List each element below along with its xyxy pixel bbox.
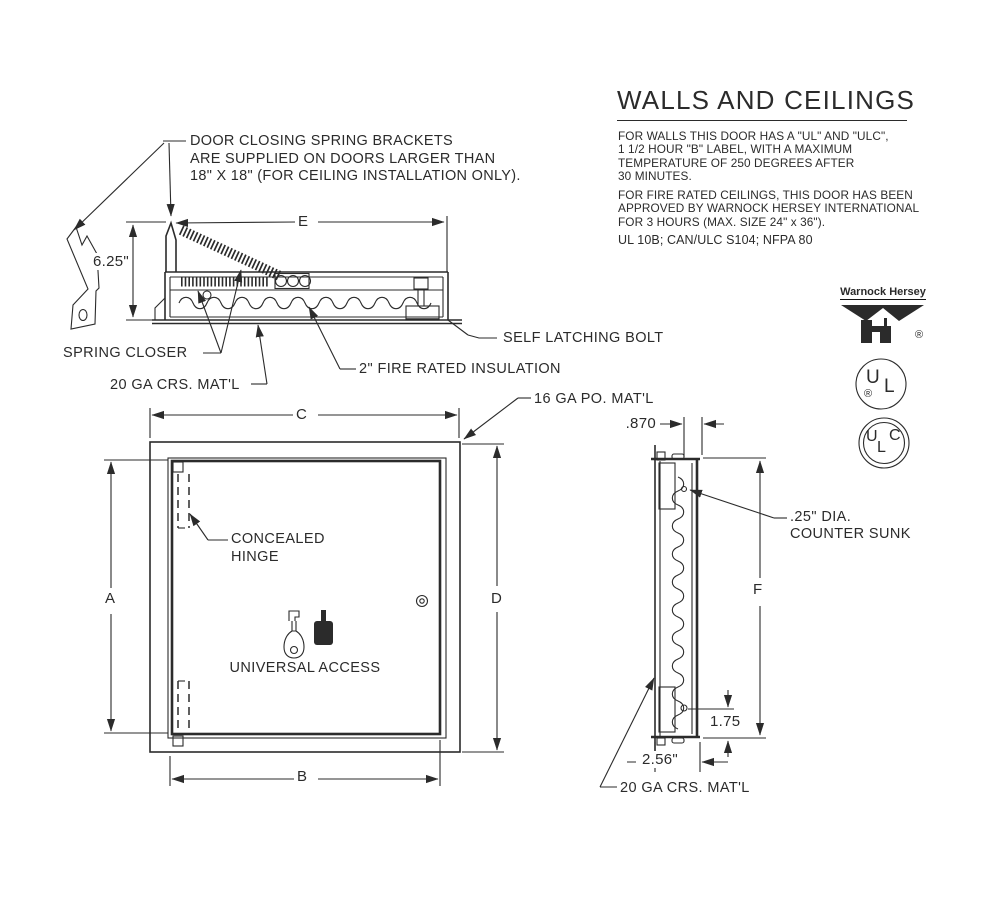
note-leaders (74, 141, 186, 230)
self-latching-bolt-graphic (406, 278, 468, 335)
section-label-leaders (198, 270, 531, 439)
ul-registered-mark: ® (864, 388, 872, 400)
label-self-latching-bolt: SELF LATCHING BOLT (503, 330, 664, 346)
square-key-icon (314, 610, 333, 645)
ulc-logo-u: U (866, 428, 878, 446)
para2-line2: APPROVED BY WARNOCK HERSEY INTERNATIONAL (618, 202, 919, 215)
concealed-hinge-bottom (173, 681, 189, 746)
para1-line3: TEMPERATURE OF 250 DEGREES AFTER (618, 157, 889, 170)
label-universal-access: UNIVERSAL ACCESS (215, 660, 395, 676)
dim-text-latch-offset: 1.75 (707, 713, 743, 730)
dim-text-b: B (294, 768, 310, 785)
dim-text-e: E (295, 213, 311, 230)
side-view (651, 445, 700, 758)
counter-sunk-line1: .25" DIA. (790, 509, 911, 525)
warnock-hersey-logo-mark (841, 305, 924, 343)
label-counter-sunk: .25" DIA.COUNTER SUNK (790, 509, 911, 542)
ul-logo-l: L (884, 376, 895, 398)
concealed-hinge-line2: HINGE (231, 549, 325, 565)
technical-drawing-page: { "title_block": { "title": "WALLS AND C… (0, 0, 1000, 900)
para2-line1: FOR FIRE RATED CEILINGS, THIS DOOR HAS B… (618, 189, 919, 202)
title-paragraph-1: FOR WALLS THIS DOOR HAS A "UL" AND "ULC"… (618, 130, 889, 184)
label-16ga: 16 GA PO. MAT'L (534, 391, 654, 407)
side-label-leaders (600, 490, 787, 787)
dim-text-c: C (293, 406, 310, 423)
dim-text-d: D (488, 590, 505, 607)
dim-text-depth-top: .870 (612, 415, 656, 432)
concealed-hinge-top (173, 462, 189, 528)
insulation-meander-vertical (672, 477, 683, 729)
dim-depth-top (660, 417, 724, 457)
ulc-logo-c: C (889, 427, 901, 445)
standards-line: UL 10B; CAN/ULC S104; NFPA 80 (618, 234, 813, 247)
ulc-logo-l: L (877, 439, 886, 457)
note-line2: ARE SUPPLIED ON DOORS LARGER THAN (190, 151, 521, 169)
para1-line4: 30 MINUTES. (618, 170, 889, 183)
dim-section-height (126, 222, 166, 320)
key-icon (284, 611, 304, 658)
insulation-meander-horizontal (179, 297, 431, 308)
label-concealed-hinge: CONCEALEDHINGE (231, 531, 325, 565)
latch-screw (417, 596, 428, 607)
label-fire-insulation: 2" FIRE RATED INSULATION (359, 361, 561, 377)
front-view (150, 442, 460, 752)
note-line3: 18" X 18" (FOR CEILING INSTALLATION ONLY… (190, 168, 521, 186)
concealed-hinge-line1: CONCEALED (231, 531, 325, 547)
label-spring-closer: SPRING CLOSER (63, 345, 187, 361)
label-20ga-top: 20 GA CRS. MAT'L (110, 377, 240, 393)
page-title: WALLS AND CEILINGS (617, 85, 907, 121)
dim-text-f: F (750, 581, 765, 598)
dim-f (703, 458, 766, 738)
ul-logo-circle (856, 359, 906, 409)
para2-line3: FOR 3 HOURS (MAX. SIZE 24" x 36"). (618, 216, 919, 229)
counter-sunk-line2: COUNTER SUNK (790, 526, 911, 542)
label-20ga-bottom: 20 GA CRS. MAT'L (620, 780, 750, 796)
spring-bracket-note: DOOR CLOSING SPRING BRACKETSARE SUPPLIED… (190, 133, 521, 186)
warnock-hersey-logo-name: Warnock Hersey (840, 286, 926, 300)
warnock-registered-mark: ® (915, 329, 923, 341)
para1-line1: FOR WALLS THIS DOOR HAS A "UL" AND "ULC"… (618, 130, 889, 143)
para1-line2: 1 1/2 HOUR "B" LABEL, WITH A MAXIMUM (618, 143, 889, 156)
ul-logo-u: U (866, 367, 880, 389)
dim-text-section-height: 6.25" (82, 253, 132, 270)
section-view (152, 223, 468, 335)
dim-text-depth: 2.56" (636, 751, 684, 768)
spring-bracket-graphic (67, 227, 99, 329)
title-paragraph-2: FOR FIRE RATED CEILINGS, THIS DOOR HAS B… (618, 189, 919, 229)
dim-text-a: A (102, 590, 118, 607)
note-line1: DOOR CLOSING SPRING BRACKETS (190, 133, 521, 151)
door-spring-diagonal (181, 230, 280, 276)
